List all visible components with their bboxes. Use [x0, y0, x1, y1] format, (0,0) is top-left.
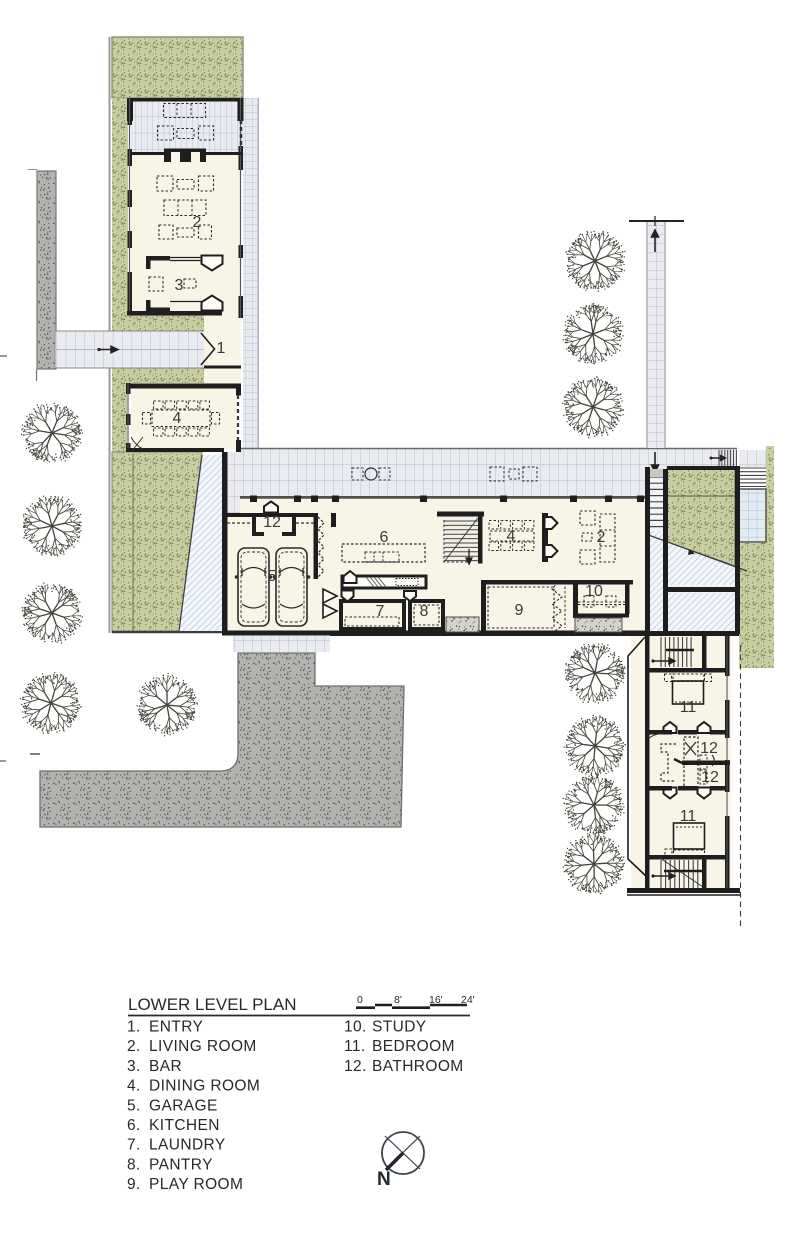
svg-text:LIVING ROOM: LIVING ROOM: [149, 1038, 257, 1055]
svg-text:BEDROOM: BEDROOM: [372, 1038, 455, 1055]
svg-text:4: 4: [507, 528, 516, 545]
svg-text:9: 9: [515, 602, 524, 619]
svg-text:4.: 4.: [127, 1078, 141, 1095]
svg-text:8': 8': [394, 994, 402, 1006]
svg-text:7: 7: [376, 603, 385, 620]
svg-text:10.: 10.: [344, 1019, 367, 1036]
svg-text:5: 5: [268, 568, 277, 585]
svg-text:LAUNDRY: LAUNDRY: [149, 1137, 226, 1154]
svg-text:0: 0: [357, 994, 363, 1006]
svg-text:9.: 9.: [127, 1176, 141, 1193]
svg-text:1: 1: [217, 340, 226, 357]
svg-text:8.: 8.: [127, 1156, 141, 1173]
svg-text:12: 12: [701, 769, 719, 786]
svg-text:6: 6: [380, 529, 389, 546]
svg-text:PLAY ROOM: PLAY ROOM: [149, 1176, 243, 1193]
svg-text:PANTRY: PANTRY: [149, 1156, 213, 1173]
svg-text:BAR: BAR: [149, 1058, 182, 1075]
svg-text:4: 4: [173, 410, 182, 427]
svg-text:LOWER LEVEL PLAN: LOWER LEVEL PLAN: [128, 995, 297, 1014]
svg-text:6.: 6.: [127, 1117, 141, 1134]
svg-text:8: 8: [420, 603, 429, 620]
svg-text:2.: 2.: [127, 1038, 141, 1055]
svg-text:11.: 11.: [344, 1038, 366, 1055]
svg-text:KITCHEN: KITCHEN: [149, 1117, 220, 1134]
svg-text:ENTRY: ENTRY: [149, 1019, 203, 1036]
svg-text:7.: 7.: [127, 1137, 141, 1154]
svg-text:N: N: [377, 1169, 391, 1190]
svg-text:3.: 3.: [127, 1058, 141, 1075]
svg-text:12: 12: [700, 740, 718, 757]
svg-text:DINING ROOM: DINING ROOM: [149, 1078, 260, 1095]
svg-text:12: 12: [263, 514, 281, 531]
svg-text:STUDY: STUDY: [372, 1019, 427, 1036]
svg-text:5.: 5.: [127, 1097, 141, 1114]
svg-text:1.: 1.: [127, 1019, 141, 1036]
svg-text:3: 3: [175, 277, 184, 294]
svg-text:GARAGE: GARAGE: [149, 1097, 218, 1114]
svg-text:2: 2: [597, 529, 606, 546]
svg-text:12.: 12.: [344, 1058, 367, 1075]
svg-text:BATHROOM: BATHROOM: [372, 1058, 464, 1075]
svg-text:2: 2: [193, 214, 202, 231]
svg-text:11: 11: [680, 699, 697, 716]
